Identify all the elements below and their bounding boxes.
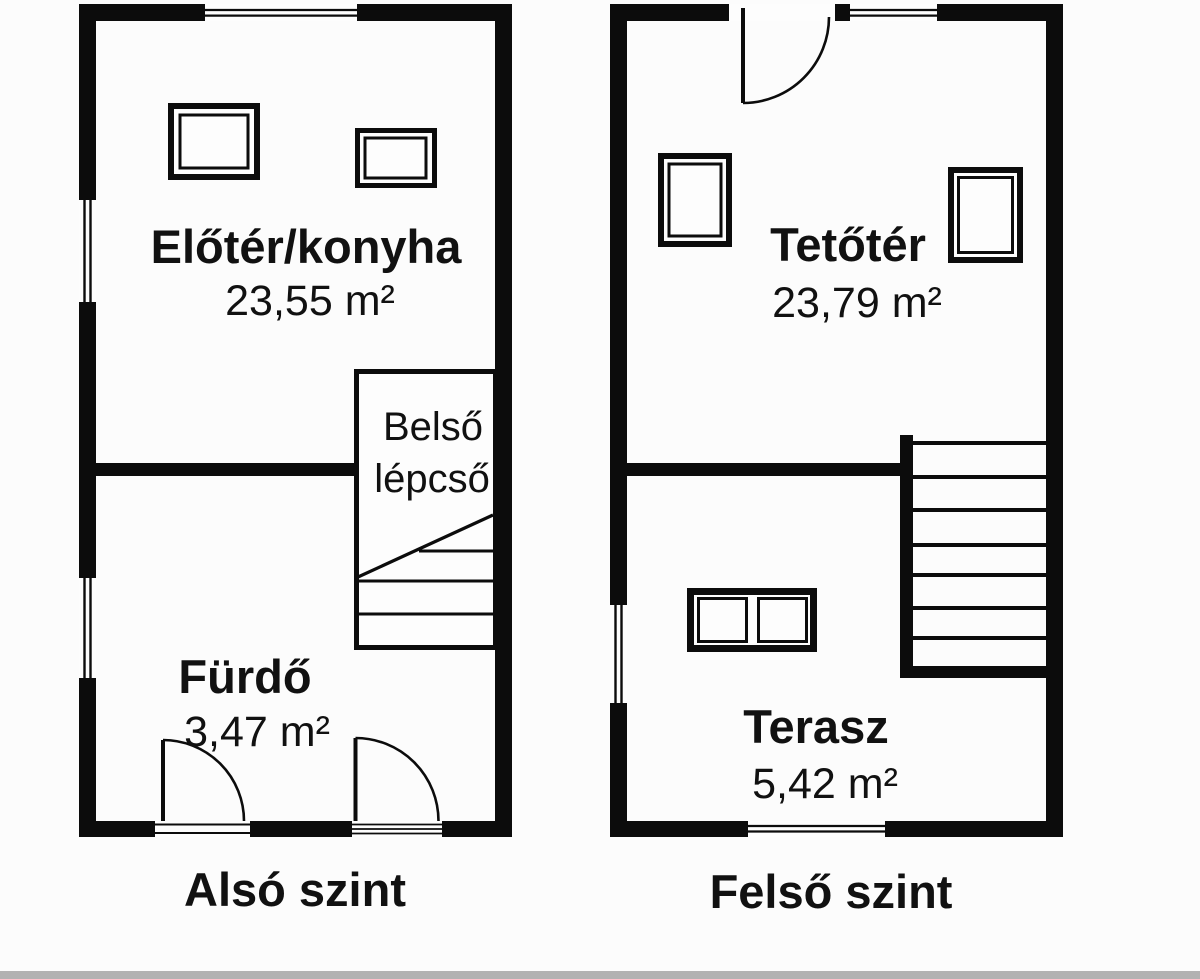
stairwell-bottom-wall bbox=[900, 666, 1048, 678]
lower-left-wall bbox=[79, 4, 96, 837]
lower-kitchen-area: 23,55 m² bbox=[225, 277, 395, 325]
door-swing-arc bbox=[356, 738, 439, 821]
upper-left-window bbox=[610, 605, 627, 703]
lower-kitchen-name: Előtér/konyha bbox=[151, 220, 463, 273]
window-opening bbox=[205, 4, 357, 21]
window-opening bbox=[748, 821, 885, 837]
upper-floor-plan: Tetőtér 23,79 m² Terasz 5,42 m² Felső sz… bbox=[610, 4, 1063, 918]
skylight-glass bbox=[367, 140, 425, 177]
upper-right-wall bbox=[1046, 4, 1063, 837]
lower-skylight-2 bbox=[355, 128, 437, 188]
lower-door-2 bbox=[352, 738, 442, 837]
skylight-glass bbox=[182, 117, 247, 167]
upper-attic-name: Tetőtér bbox=[770, 218, 926, 271]
stairs-label-line2: lépcső bbox=[374, 457, 490, 501]
upper-partition-wall bbox=[627, 463, 903, 476]
upper-skylight-1 bbox=[658, 153, 732, 247]
lower-bath-area: 3,47 m² bbox=[184, 708, 330, 756]
window-pane bbox=[759, 599, 807, 642]
upper-terrace-area: 5,42 m² bbox=[752, 760, 898, 808]
upper-left-wall bbox=[610, 4, 627, 837]
lower-left-window-2 bbox=[79, 578, 96, 678]
floorplan-sheet: Előtér/konyha 23,55 m² Belső lépcső Fürd… bbox=[0, 0, 1200, 979]
lower-floor-plan: Előtér/konyha 23,55 m² Belső lépcső Fürd… bbox=[79, 4, 512, 916]
window-opening bbox=[610, 605, 627, 703]
upper-skylight-2 bbox=[948, 167, 1023, 263]
upper-bottom-window bbox=[748, 821, 885, 837]
terrace-double-window bbox=[687, 588, 817, 652]
window-opening bbox=[850, 4, 937, 21]
lower-bath-name: Fürdő bbox=[178, 650, 311, 703]
stairwell-side-wall bbox=[900, 435, 913, 678]
lower-left-window-1 bbox=[79, 200, 96, 302]
floorplan-drawing: Előtér/konyha 23,55 m² Belső lépcső Fürd… bbox=[0, 0, 1200, 979]
window-opening bbox=[79, 578, 96, 678]
window-opening bbox=[79, 200, 96, 302]
upper-entry-door bbox=[729, 4, 848, 103]
upper-plan-caption: Felső szint bbox=[710, 865, 953, 918]
footer-bar bbox=[0, 971, 1200, 979]
lower-partition-wall bbox=[96, 463, 355, 476]
upper-attic-area: 23,79 m² bbox=[772, 279, 942, 327]
upper-staircase bbox=[900, 435, 1048, 678]
upper-top-window bbox=[850, 4, 937, 21]
door-jamb bbox=[835, 4, 848, 21]
lower-bottom-wall bbox=[79, 821, 512, 837]
door-swing-arc bbox=[743, 17, 829, 103]
lower-plan-caption: Alsó szint bbox=[184, 863, 406, 916]
door-opening bbox=[155, 821, 250, 837]
skylight-glass bbox=[960, 179, 1011, 251]
window-pane bbox=[699, 599, 747, 642]
skylight-glass bbox=[671, 166, 720, 235]
lower-skylight-1 bbox=[168, 103, 260, 180]
lower-top-window bbox=[205, 4, 357, 21]
upper-terrace-name: Terasz bbox=[743, 700, 888, 753]
stairs-label-line1: Belső bbox=[383, 405, 483, 449]
